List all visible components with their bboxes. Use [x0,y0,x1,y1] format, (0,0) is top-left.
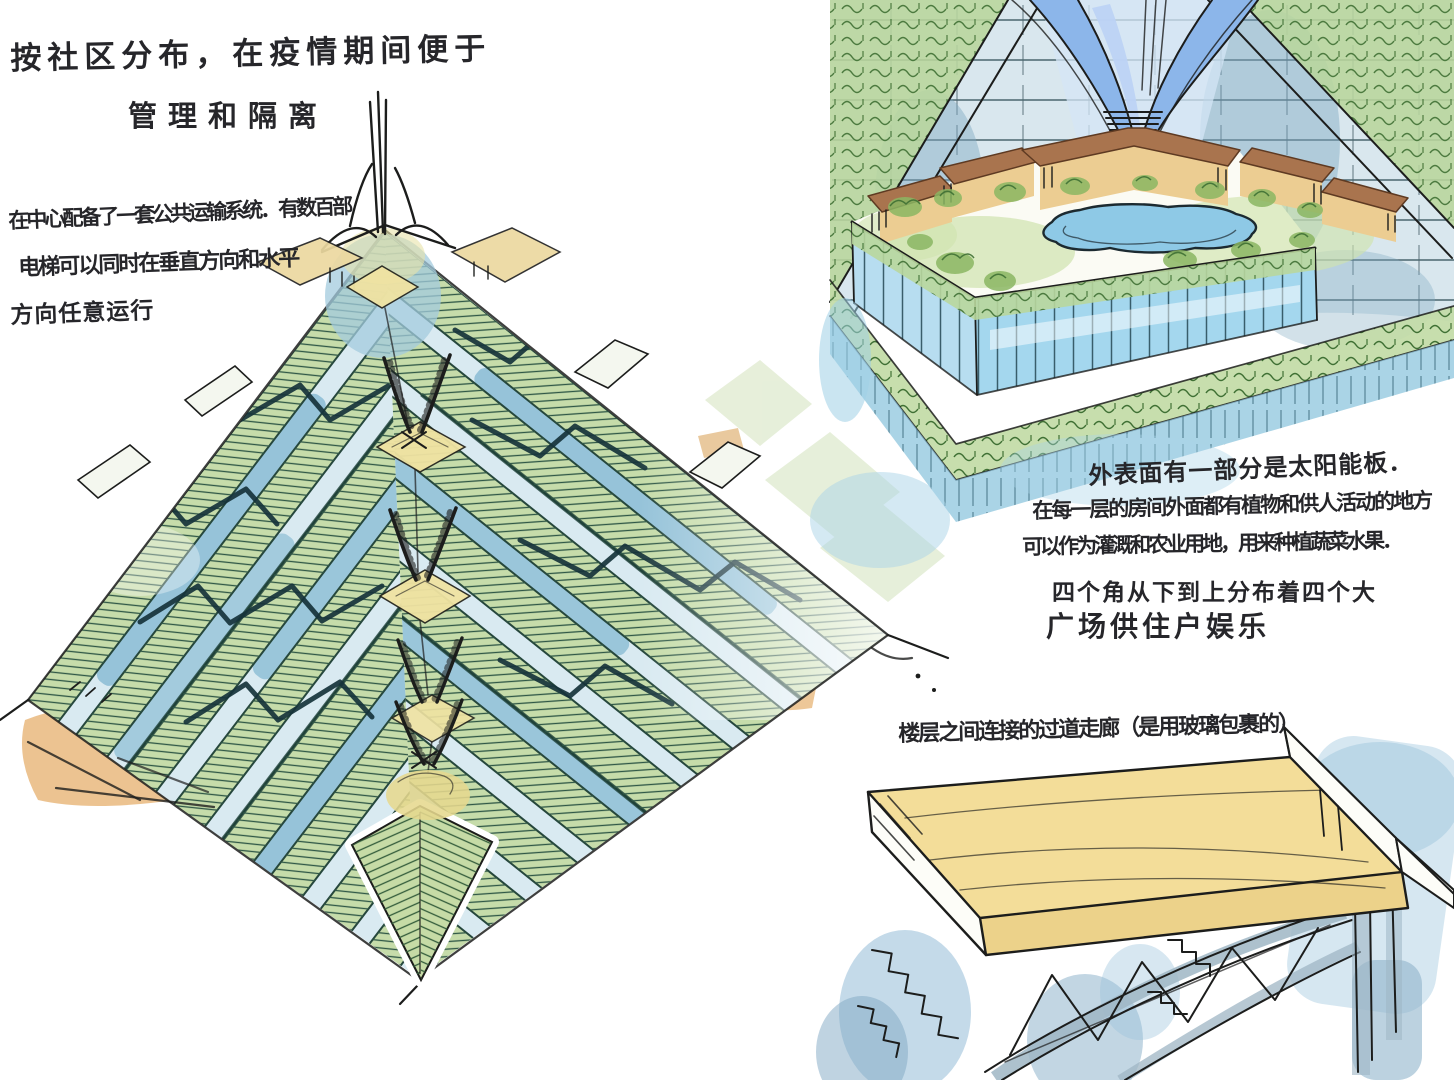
garden-pond [1043,204,1256,252]
note-plaza-line1: 四个角从下到上分布着四个大 [1052,580,1377,605]
glass-corridor-bridge-sketch [816,727,1454,1080]
note-community-line2: 管理和隔离 [128,102,328,134]
sketch-page: 按社区分布，在疫情期间便于 管理和隔离 在中心配备了一套公共运输系统．有数百部 … [0,0,1454,1080]
note-plaza-line2: 广场供住户娱乐 [1046,612,1270,643]
pyramid-tower-sketch [0,92,948,1080]
note-transport-line3: 方向任意运行 [10,298,155,328]
